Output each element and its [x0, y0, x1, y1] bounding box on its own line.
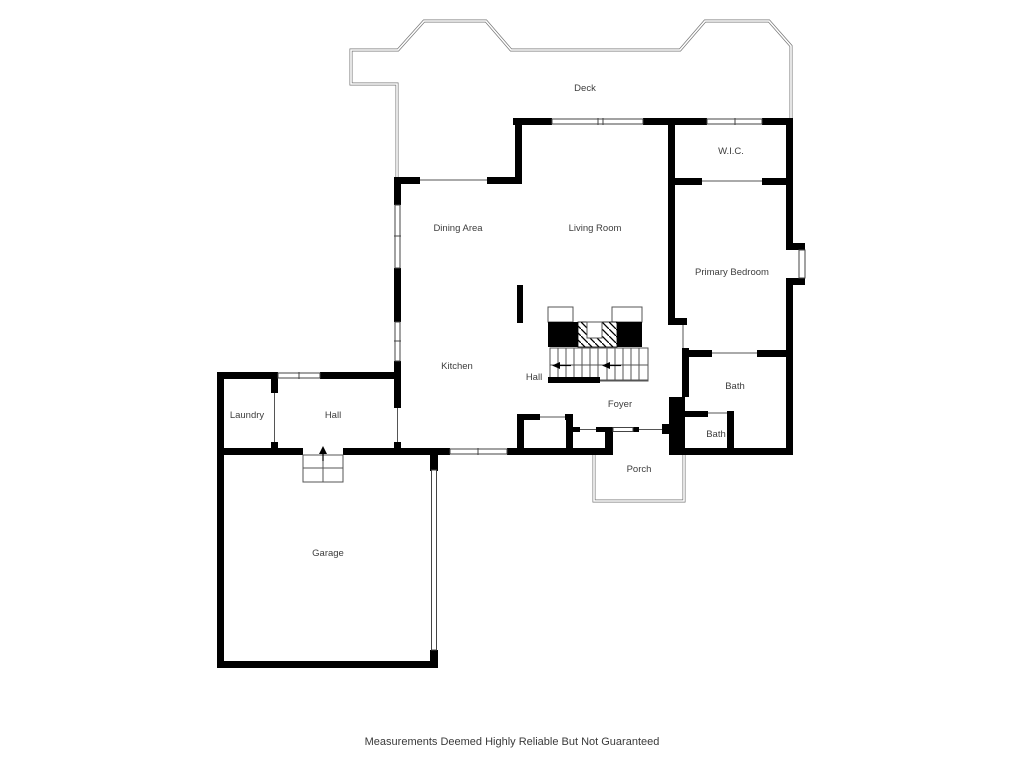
steps-up-arrow — [319, 446, 327, 454]
room-label-kitchen: Kitchen — [441, 361, 473, 372]
porch-outline — [594, 453, 684, 501]
interior-walls — [271, 125, 790, 455]
room-label-hall-left: Hall — [325, 410, 341, 421]
main-staircase — [548, 348, 648, 383]
room-label-primary-bedroom: Primary Bedroom — [695, 267, 769, 278]
fireplace-block — [548, 307, 642, 347]
exterior-walls — [217, 118, 805, 668]
disclaimer-text: Measurements Deemed Highly Reliable But … — [365, 736, 660, 748]
front-door-symbol — [613, 428, 633, 432]
room-label-laundry: Laundry — [230, 410, 265, 421]
room-label-wic: W.I.C. — [718, 146, 744, 157]
room-label-bath-main: Bath — [725, 381, 745, 392]
room-label-dining-area: Dining Area — [433, 223, 483, 234]
floor-plan-canvas: Deck W.I.C. Dining Area Living Room Prim… — [0, 0, 1024, 768]
room-label-foyer: Foyer — [608, 399, 632, 410]
room-labels: Deck W.I.C. Dining Area Living Room Prim… — [230, 83, 769, 559]
room-label-garage: Garage — [312, 548, 344, 559]
room-label-bath-small: Bath — [706, 429, 726, 440]
room-label-hall-center: Hall — [526, 372, 542, 383]
room-label-deck: Deck — [574, 83, 596, 94]
stair-direction-arrow — [602, 362, 610, 369]
floor-plan-page: Deck W.I.C. Dining Area Living Room Prim… — [0, 0, 1024, 768]
garage-entry-steps — [303, 446, 343, 482]
stair-direction-arrow — [552, 362, 560, 369]
room-label-living-room: Living Room — [569, 223, 622, 234]
room-label-porch: Porch — [627, 464, 652, 475]
